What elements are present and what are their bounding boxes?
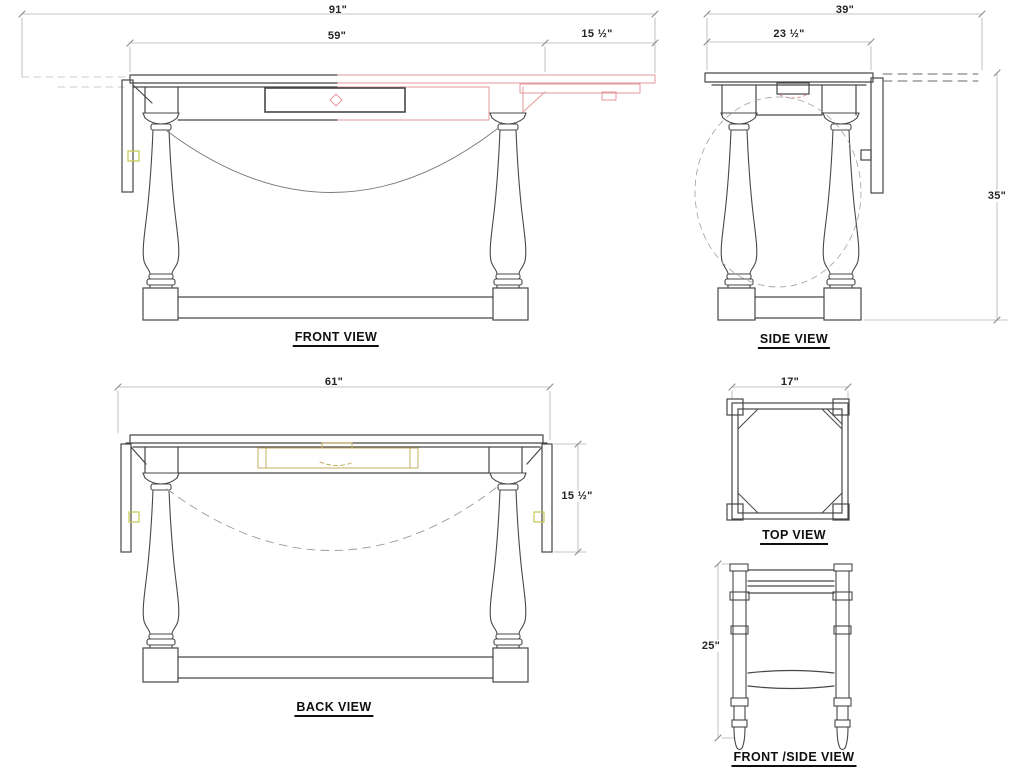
top-outer-frame [732,403,848,519]
side-top-dim: 23 ½" [773,28,804,40]
top-view-drawing [727,384,851,520]
side-dim-ticks [704,11,1000,323]
top-dim-lines [732,387,848,398]
blueprint-page: 91" 59" 15 ½" FRONT VIEW 39" 23 ½" 35" S… [0,0,1024,768]
back-dim-lines [118,387,586,552]
front-dim-lines [22,14,655,77]
back-apron [145,447,522,473]
back-leaf-latches [129,512,544,522]
front-right-leg [490,113,526,288]
back-leaf-drop-dim: 15 ½" [559,490,594,502]
top-inner-frame [738,409,842,513]
side-leaf-swing-circle [695,97,861,287]
back-dim-ticks [115,384,581,555]
front-side-view-drawing [715,561,852,750]
side-height-dim: 35" [986,190,1008,202]
stool-height-dim: 25" [700,640,722,652]
back-view-title: BACK VIEW [294,700,373,717]
back-tabletop [126,435,547,447]
front-leaf-hinge [133,85,152,103]
side-leaf-latch [861,150,871,160]
stool-right-leg [833,564,852,750]
back-left-leaf-folded [121,444,131,552]
front-drawer [265,88,405,112]
stool-top-rails [748,570,834,593]
top-corner-braces [738,409,842,513]
side-back-leg [823,113,859,288]
back-swag-arc-dashed [167,487,497,551]
stool-left-leg [730,564,749,750]
front-drop-leaf-folded [122,80,133,192]
back-right-leaf-folded [542,444,552,552]
front-base [143,288,528,320]
top-width-dim: 17" [781,376,799,388]
front-view-title: FRONT VIEW [293,330,379,347]
back-right-leg [490,473,526,648]
side-view-drawing [695,11,1008,323]
side-overall-dim: 39" [836,4,854,16]
front-side-view-title: FRONT /SIDE VIEW [732,750,857,767]
side-dim-lines [707,14,1008,320]
front-left-leg [143,113,179,288]
side-view-title: SIDE VIEW [758,332,830,349]
front-overall-dim: 91" [329,4,347,16]
back-view-drawing [115,384,586,682]
side-drawer-pull-dashed [780,95,806,98]
side-leaf-raised-dashed [883,74,978,81]
back-overall-dim: 61" [325,376,343,388]
side-base [718,288,861,320]
back-leaf-hinges [131,447,542,464]
back-left-leg [143,473,179,648]
side-front-leg [721,113,757,288]
front-leaf-raised-dashed [22,77,130,87]
front-apron [145,87,337,120]
stool-stretcher [748,671,834,689]
front-view-drawing [19,11,658,320]
front-top-dim: 59" [328,30,346,42]
blueprint-canvas [0,0,1024,768]
side-drop-leaf-folded [871,78,883,193]
front-extension-dim: 15 ½" [581,28,612,40]
front-tabletop [130,75,337,87]
side-apron [722,85,856,115]
back-base [143,648,528,682]
top-view-title: TOP VIEW [760,528,828,545]
front-swag-arc [167,129,497,193]
